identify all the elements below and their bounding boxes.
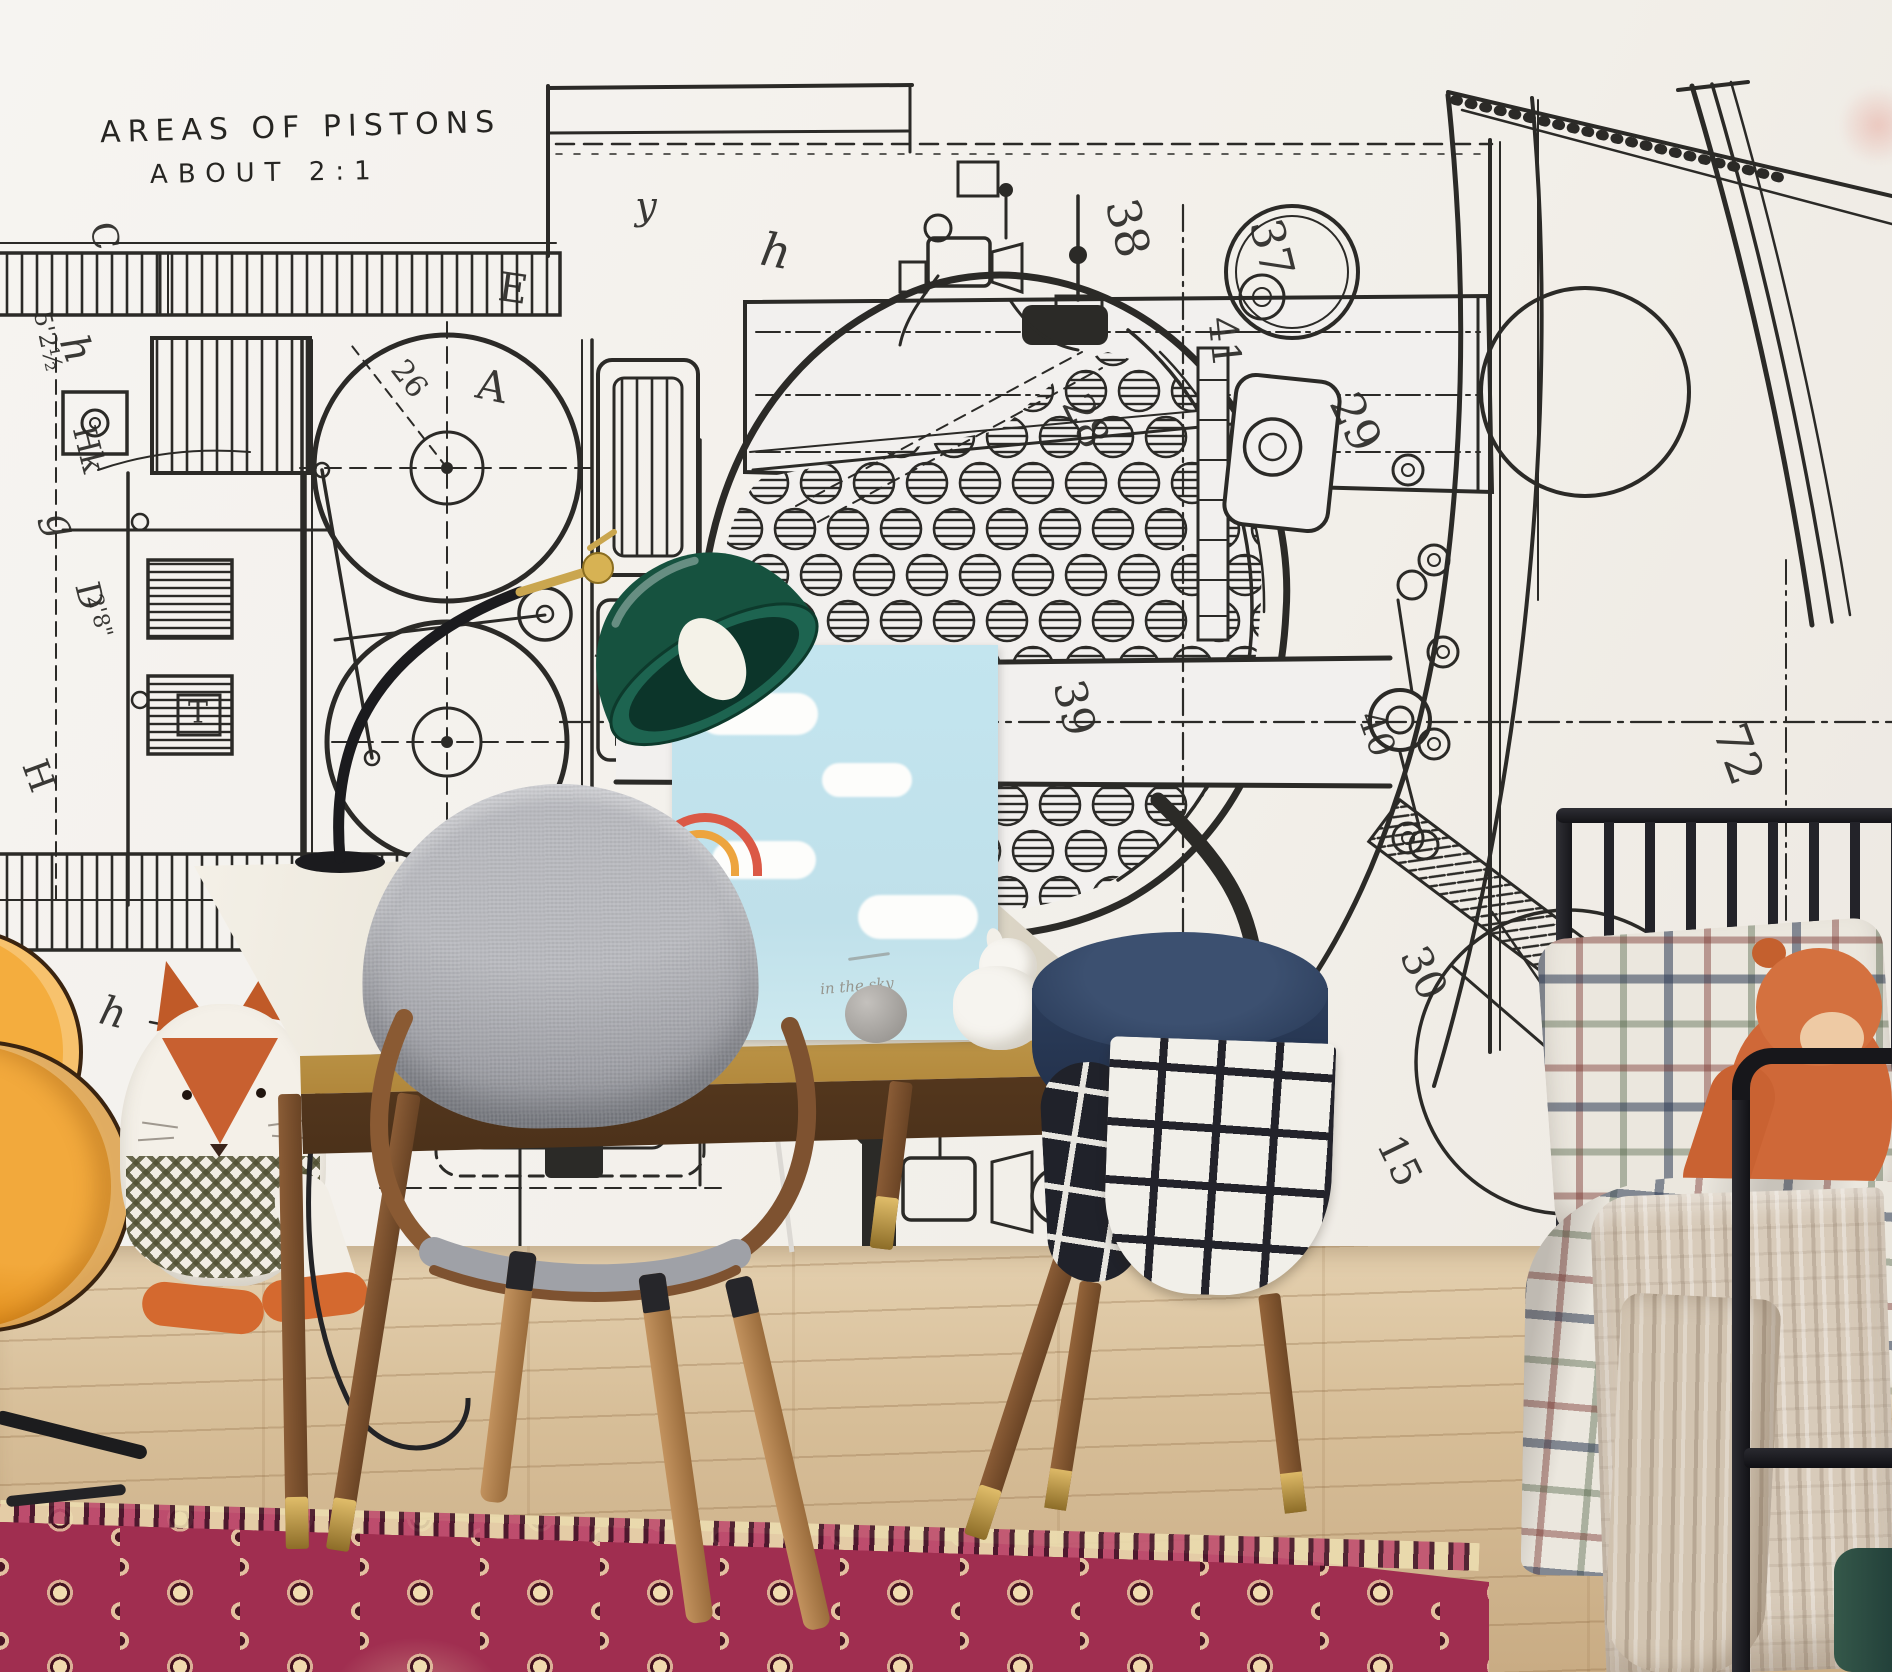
grid-blanket bbox=[1102, 1036, 1337, 1299]
bed-footboard-corner bbox=[1732, 1048, 1892, 1124]
knit-blanket-fold bbox=[1602, 1292, 1782, 1672]
mural-label: 39 bbox=[1042, 675, 1105, 742]
desk-leg bbox=[278, 1094, 309, 1549]
bed-footboard-rail bbox=[1744, 1448, 1892, 1468]
kids-room-scene: AREAS OF PISTONS ABOUT 2:1 3837412829394… bbox=[0, 0, 1892, 1672]
mural-label: T bbox=[188, 696, 208, 731]
mural-label: g bbox=[35, 504, 87, 544]
mural-label: E bbox=[495, 264, 530, 314]
desk-chair bbox=[338, 768, 858, 1672]
mural-label: 41 bbox=[1198, 314, 1249, 369]
mural-label: 2'8" bbox=[81, 591, 117, 640]
mural-label: h bbox=[757, 222, 796, 280]
mural-label: A bbox=[472, 359, 512, 413]
bed-footboard-post bbox=[1732, 1100, 1750, 1672]
mural-label: 40 bbox=[1349, 705, 1403, 762]
lamp-brass-joint bbox=[583, 553, 613, 583]
mural-label: 15 bbox=[1367, 1128, 1431, 1194]
mural-label: H bbox=[13, 754, 62, 798]
mural-label: 5'2½ bbox=[28, 309, 68, 374]
mural-label: C bbox=[81, 219, 126, 253]
mural-label: Hk bbox=[65, 421, 113, 476]
mural-label: 26 bbox=[383, 353, 434, 405]
mural-label: 30 bbox=[1390, 938, 1457, 1008]
mural-heading-line1: AREAS OF PISTONS bbox=[100, 105, 502, 150]
mural-heading-line2: ABOUT 2:1 bbox=[150, 156, 381, 190]
green-cushion bbox=[1834, 1548, 1892, 1672]
mural-label: 29 bbox=[1319, 384, 1393, 460]
cloud-illustration bbox=[698, 693, 818, 735]
mural-label: h bbox=[50, 329, 102, 369]
mural-label: 28 bbox=[1052, 386, 1119, 456]
mural-label: 37 bbox=[1239, 213, 1306, 283]
stool-cushion bbox=[1032, 932, 1328, 1052]
navy-stool bbox=[1018, 922, 1358, 1582]
mural-label: 38 bbox=[1095, 193, 1162, 263]
mural-label: 72 bbox=[1701, 716, 1775, 793]
stool-leg bbox=[1044, 1280, 1102, 1511]
out-of-focus-object bbox=[1842, 82, 1892, 168]
mural-label: D bbox=[66, 578, 111, 614]
stool-leg bbox=[1258, 1293, 1307, 1514]
bed-headboard-rail bbox=[1556, 808, 1892, 823]
chair-wood-frame bbox=[338, 768, 858, 1672]
mural-label: B bbox=[589, 622, 633, 676]
mural-label: y bbox=[635, 184, 656, 228]
cloud-illustration bbox=[858, 895, 978, 939]
